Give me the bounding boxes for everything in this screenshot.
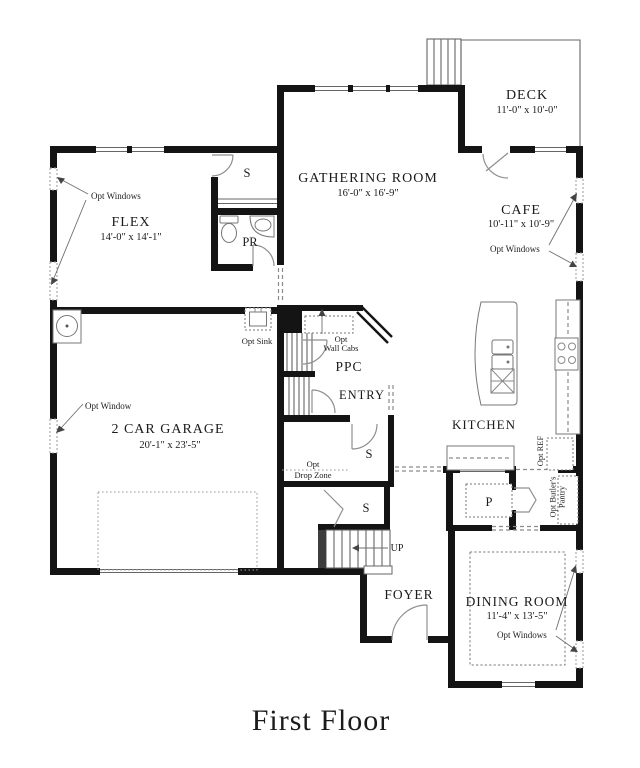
room-dims-deck: 11'-0" x 10'-0"	[497, 105, 558, 116]
plan-title: First Floor	[252, 704, 391, 737]
room-label-flex: FLEX	[112, 215, 151, 230]
room-label-gathering: GATHERING ROOM	[298, 171, 438, 186]
flex-closet-door	[212, 155, 233, 176]
room-dims-flex: 14'-0" x 14'-1"	[100, 232, 161, 243]
up-label: UP	[391, 543, 404, 554]
room-label-kitchen: KITCHEN	[452, 417, 516, 432]
room-label-deck: DECK	[506, 88, 548, 103]
room-label-powder: PR	[242, 235, 258, 249]
opt-windows-label-flex: Opt Windows	[91, 191, 141, 201]
room-dims-garage: 20'-1" x 23'-5"	[139, 440, 200, 451]
opt-window-label-garage: Opt Window	[85, 401, 132, 411]
optional-refrigerator-outline	[547, 438, 573, 470]
stair-landing	[364, 566, 392, 574]
closet-marker-2: S	[366, 447, 373, 461]
garage-bay-outline	[98, 492, 257, 570]
deck-stairs	[427, 39, 461, 85]
foyer-stairs	[318, 530, 392, 574]
stair-newel	[318, 530, 326, 568]
room-label-entry: ENTRY	[339, 388, 385, 402]
closet-marker-3: S	[363, 501, 370, 515]
ppc-cabinets	[305, 309, 353, 335]
opt-windows-label-cafe: Opt Windows	[490, 244, 540, 254]
pantry-marker: P	[486, 495, 493, 509]
closet-bifold-door	[324, 490, 343, 527]
kitchen-island	[475, 302, 517, 405]
room-dims-dining: 11'-4" x 13'-5"	[487, 611, 548, 622]
room-dims-gathering: 16'-0" x 16'-9"	[337, 188, 398, 199]
room-label-foyer: FOYER	[384, 587, 433, 602]
toilet-bowl-icon	[222, 224, 237, 243]
room-label-ppc: PPC	[335, 359, 362, 374]
opt-drop-zone-label-1: Opt	[307, 459, 320, 469]
opt-butlers-pantry-label-2: Pantry	[557, 485, 567, 508]
range-icon	[555, 338, 578, 370]
opt-ref-label: Opt REF	[535, 435, 545, 466]
deck-door	[483, 153, 508, 178]
opt-sink-label: Opt Sink	[242, 336, 273, 346]
opt-drop-zone-label-2: Drop Zone	[294, 470, 331, 480]
entry-stair-door	[312, 390, 335, 413]
island-sink-icon	[492, 340, 513, 354]
room-label-cafe: CAFE	[501, 203, 541, 218]
closet-shelf	[218, 199, 277, 204]
floor-plan-drawing: FLEX 14'-0" x 14'-1" GATHERING ROOM 16'-…	[0, 0, 640, 768]
closet-door	[352, 424, 377, 449]
sink-basin-icon	[255, 219, 271, 231]
opt-windows-label-dining: Opt Windows	[497, 630, 547, 640]
closet-marker-1: S	[244, 166, 251, 180]
toilet-tank-icon	[220, 216, 238, 223]
pantry-door	[514, 488, 536, 512]
water-heater-icon	[53, 310, 81, 343]
room-label-garage: 2 CAR GARAGE	[111, 422, 224, 437]
optional-sink-icon	[245, 308, 271, 330]
room-label-dining: DINING ROOM	[466, 594, 569, 609]
room-dims-cafe: 10'-11" x 10'-9"	[488, 219, 554, 230]
front-door	[392, 605, 427, 640]
opt-wall-cabs-label-2: Wall Cabs	[324, 343, 359, 353]
floor-plan-page: FLEX 14'-0" x 14'-1" GATHERING ROOM 16'-…	[0, 0, 640, 768]
